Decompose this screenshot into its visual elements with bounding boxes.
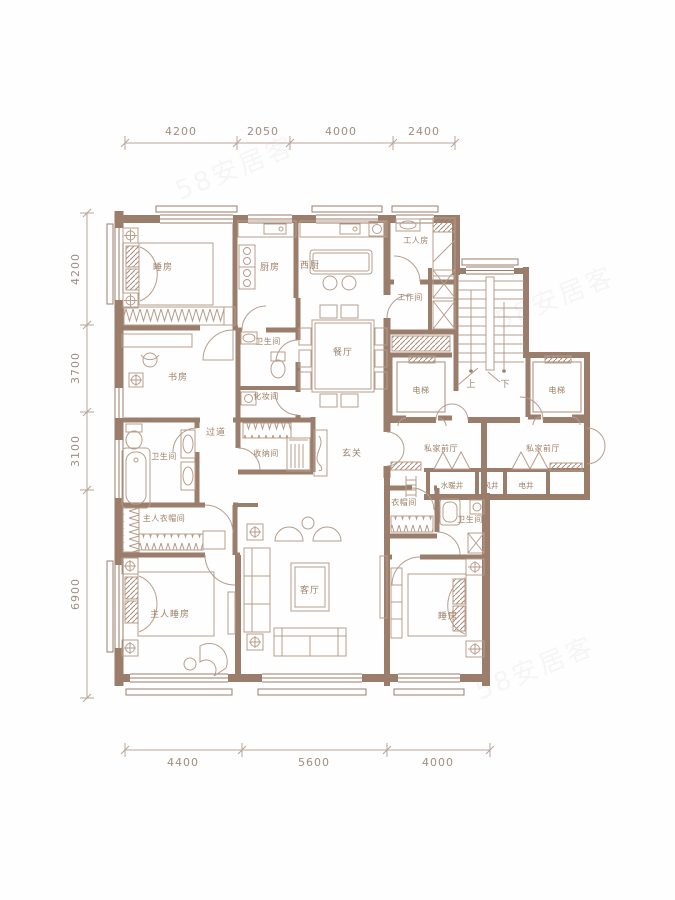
west-kitchen-fixtures bbox=[300, 221, 387, 290]
label-wind-shaft: 风井 bbox=[484, 480, 499, 490]
dim-bottom-1: 5600 bbox=[298, 756, 330, 769]
label-master-bedroom: 主人睡房 bbox=[150, 608, 190, 620]
label-master-bath: 卫生间 bbox=[151, 451, 177, 461]
master-bath-fixtures bbox=[122, 424, 195, 508]
floor-plan-svg: 58安居客 58安居客 58安居客 bbox=[0, 0, 675, 900]
dim-top-2: 4000 bbox=[325, 125, 357, 138]
bed-top-left bbox=[123, 228, 235, 325]
label-bath-mid: 卫生间 bbox=[255, 336, 281, 346]
dim-top-3: 2400 bbox=[408, 125, 440, 138]
label-water-shaft: 水暖井 bbox=[441, 480, 464, 490]
worker-room-fixtures bbox=[396, 218, 455, 276]
label-master-closet: 主人衣帽间 bbox=[143, 513, 186, 523]
dim-top-0: 4200 bbox=[165, 125, 197, 138]
dim-bottom-2: 4000 bbox=[422, 756, 454, 769]
dim-bottom-0: 4400 bbox=[167, 756, 199, 769]
label-bedroom-right: 睡房 bbox=[438, 610, 458, 622]
floor-plan-page: 58安居客 58安居客 58安居客 bbox=[0, 0, 675, 900]
dim-left-3: 6900 bbox=[69, 578, 82, 610]
foyer-cabinet bbox=[314, 430, 327, 476]
dim-top-1: 2050 bbox=[247, 125, 279, 138]
label-worker-room: 工人房 bbox=[403, 235, 429, 245]
watermark-text: 58安居客 bbox=[471, 631, 599, 706]
label-work-room: 工作间 bbox=[397, 292, 423, 302]
label-closet: 衣帽间 bbox=[391, 497, 417, 507]
label-private-hall-right: 私家前厅 bbox=[526, 443, 560, 453]
label-stairs-up: 上 bbox=[466, 379, 475, 390]
label-living: 客厅 bbox=[300, 584, 320, 596]
label-stairs-down: 下 bbox=[500, 380, 509, 390]
dim-left-1: 3700 bbox=[69, 352, 82, 384]
right-bath-fixtures bbox=[440, 499, 484, 553]
closet-fixtures bbox=[391, 516, 433, 532]
label-makeup: 化妆间 bbox=[253, 391, 279, 401]
label-bath-right: 卫生间 bbox=[457, 514, 483, 524]
dim-left-0: 4200 bbox=[69, 253, 82, 285]
label-elec-shaft: 电井 bbox=[519, 480, 534, 490]
label-dining: 餐厅 bbox=[333, 346, 353, 358]
label-kitchen: 厨房 bbox=[260, 261, 280, 273]
label-study: 书房 bbox=[168, 371, 188, 383]
label-storage: 收纳间 bbox=[253, 448, 279, 458]
storage-fixtures bbox=[243, 423, 310, 471]
label-elevator-left: 电梯 bbox=[413, 385, 430, 395]
label-elevator-right: 电梯 bbox=[549, 385, 566, 395]
dim-left-2: 3100 bbox=[69, 435, 82, 467]
label-foyer: 玄关 bbox=[342, 447, 362, 459]
label-bedroom-top: 睡房 bbox=[153, 261, 173, 273]
label-west-kitchen: 西厨 bbox=[300, 260, 320, 271]
label-private-hall-left: 私家前厅 bbox=[424, 443, 458, 453]
kitchen-fixtures bbox=[238, 221, 296, 289]
right-bedroom-fixtures bbox=[391, 559, 484, 657]
label-corridor: 过道 bbox=[206, 426, 226, 438]
